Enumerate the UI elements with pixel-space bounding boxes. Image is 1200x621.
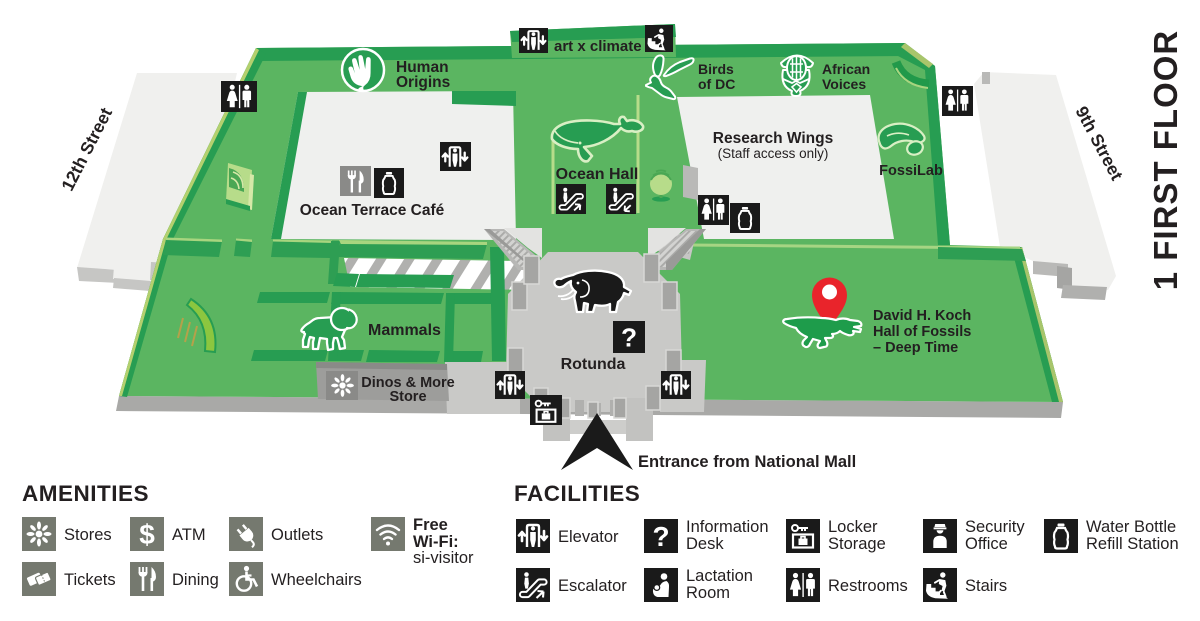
svg-text:Birds: Birds xyxy=(698,61,734,77)
svg-text:Origins: Origins xyxy=(396,74,450,91)
svg-text:Office: Office xyxy=(965,535,1008,553)
svg-text:Desk: Desk xyxy=(686,535,724,553)
svg-text:– Deep Time: – Deep Time xyxy=(873,340,958,356)
svg-text:AMENITIES: AMENITIES xyxy=(22,481,149,506)
svg-text:Mammals: Mammals xyxy=(368,322,441,339)
svg-text:Hall of Fossils: Hall of Fossils xyxy=(873,324,971,340)
svg-text:ATM: ATM xyxy=(172,526,206,544)
svg-text:(Staff access only): (Staff access only) xyxy=(718,146,829,161)
svg-text:African: African xyxy=(822,61,870,77)
svg-text:Stores: Stores xyxy=(64,526,112,544)
svg-text:FossiLab: FossiLab xyxy=(879,163,943,179)
svg-text:of DC: of DC xyxy=(698,76,735,92)
svg-text:Information: Information xyxy=(686,518,769,536)
svg-text:Refill Station: Refill Station xyxy=(1086,535,1179,553)
svg-text:Security: Security xyxy=(965,518,1025,536)
svg-text:Rotunda: Rotunda xyxy=(561,356,626,373)
svg-text:Wheelchairs: Wheelchairs xyxy=(271,571,362,589)
svg-text:Ocean Hall: Ocean Hall xyxy=(556,166,639,183)
svg-text:Storage: Storage xyxy=(828,535,886,553)
svg-text:Voices: Voices xyxy=(822,76,866,92)
svg-text:Water Bottle: Water Bottle xyxy=(1086,518,1176,536)
svg-text:Research Wings: Research Wings xyxy=(713,130,833,147)
svg-text:Stairs: Stairs xyxy=(965,577,1007,595)
svg-text:Dining: Dining xyxy=(172,571,219,589)
svg-text:1 FIRST FLOOR: 1 FIRST FLOOR xyxy=(1147,30,1184,291)
svg-text:Room: Room xyxy=(686,584,730,602)
svg-text:Escalator: Escalator xyxy=(558,577,627,595)
svg-text:Elevator: Elevator xyxy=(558,528,619,546)
svg-text:Restrooms: Restrooms xyxy=(828,577,908,595)
svg-text:Entrance from National Mall: Entrance from National Mall xyxy=(638,453,856,471)
svg-text:Locker: Locker xyxy=(828,518,878,536)
svg-text:Store: Store xyxy=(389,389,426,405)
svg-text:si-visitor: si-visitor xyxy=(413,549,474,567)
svg-text:Ocean Terrace Café: Ocean Terrace Café xyxy=(300,202,445,219)
svg-text:Free: Free xyxy=(413,516,448,534)
svg-text:Tickets: Tickets xyxy=(64,571,116,589)
svg-text:FACILITIES: FACILITIES xyxy=(514,481,640,506)
svg-text:Lactation: Lactation xyxy=(686,567,753,585)
svg-text:David H. Koch: David H. Koch xyxy=(873,308,971,324)
svg-text:art x climate: art x climate xyxy=(554,38,642,55)
svg-text:Outlets: Outlets xyxy=(271,526,323,544)
